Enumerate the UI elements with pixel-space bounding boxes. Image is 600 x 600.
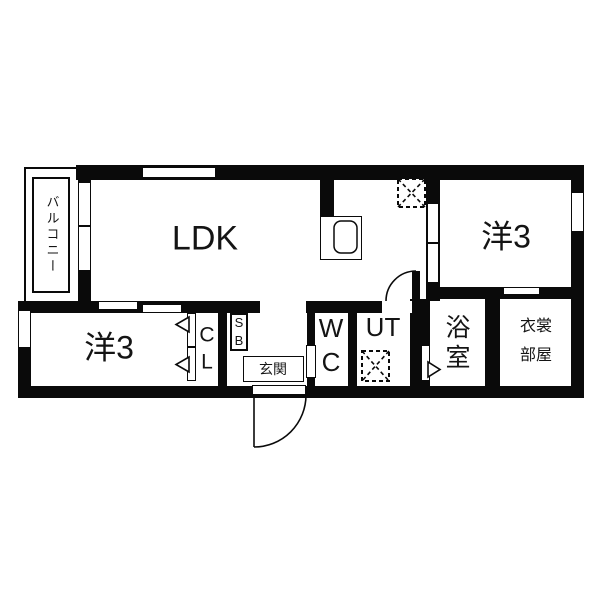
- window-ldk-top: [143, 167, 215, 178]
- window-bedroom-top-right: [571, 193, 584, 231]
- sliding-door-dressing-room: [503, 287, 540, 295]
- balcony-label: バルコニー: [44, 195, 59, 275]
- opening-ldk-entrance: [260, 301, 306, 313]
- closet-door-panel1: [187, 313, 196, 347]
- refrigerator-dashed-box: [398, 179, 425, 207]
- wall-toilet-utility: [348, 313, 357, 386]
- floor-plan: LDK 洋3 洋3 バルコニー C L S B 玄関 W C UT 浴 室 衣裳…: [0, 0, 600, 600]
- wall-bedroom-top-bottom: [426, 287, 571, 299]
- utility-label: UT: [366, 313, 401, 343]
- sliding-door-bedroom-top-divider: [427, 242, 439, 244]
- bedroom-bottom-label: 洋3: [84, 330, 134, 367]
- washing-machine-dashed-box: [362, 351, 389, 381]
- ldk-label: LDK: [172, 219, 238, 258]
- bathroom-label: 浴 室: [445, 313, 470, 373]
- sliding-door-bedroom-bottom-panel1: [98, 301, 138, 310]
- door-bathroom: [421, 345, 430, 381]
- toilet-label: W C: [319, 312, 344, 380]
- bedroom-top-label: 洋3: [481, 219, 531, 256]
- wall-kitchen-stub: [320, 180, 334, 217]
- front-door-panel: [252, 385, 306, 395]
- kitchen-counter: [320, 216, 362, 260]
- closet-label: C L: [199, 322, 214, 377]
- door-entrance-toilet: [306, 345, 316, 378]
- wall-closet-right: [218, 313, 227, 386]
- ldk-door-leaf: [412, 271, 420, 301]
- dressing-room-label: 衣裳 部屋: [520, 313, 552, 371]
- window-balcony-divider: [78, 225, 91, 227]
- closet-door-panel2: [187, 347, 196, 381]
- front-door-arc: [254, 395, 306, 447]
- window-bedroom-bottom-left: [18, 311, 31, 347]
- shoe-box-label: S B: [235, 314, 244, 350]
- sliding-door-bedroom-bottom-panel2: [142, 304, 182, 313]
- entrance-label: 玄関: [259, 361, 287, 377]
- wall-bath-dressing: [485, 299, 500, 386]
